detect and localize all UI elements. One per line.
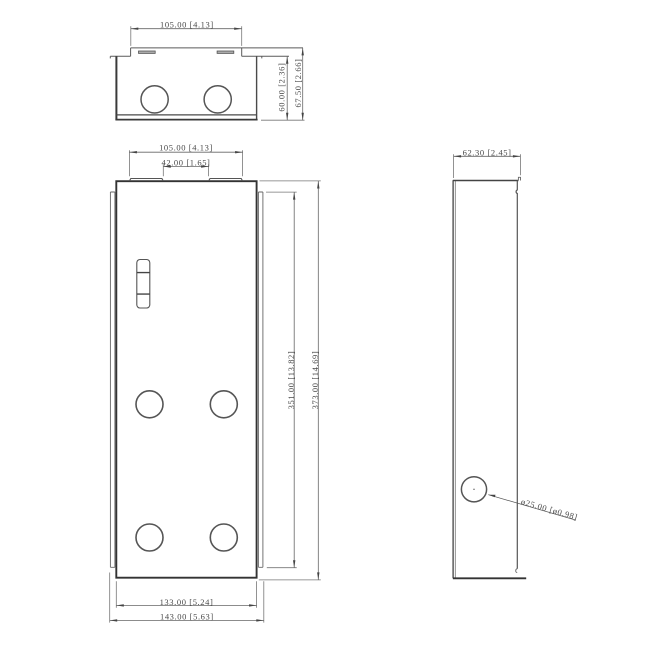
svg-text:60.00 [2.36]: 60.00 [2.36] — [277, 63, 287, 112]
svg-text:105.00 [4.13]: 105.00 [4.13] — [160, 20, 214, 30]
svg-text:67.50 [2.66]: 67.50 [2.66] — [293, 59, 303, 108]
svg-text:133.00 [5.24]: 133.00 [5.24] — [160, 597, 214, 607]
svg-text:42.00 [1.65]: 42.00 [1.65] — [162, 157, 211, 167]
svg-text:62.30 [2.45]: 62.30 [2.45] — [463, 147, 512, 157]
svg-text:105.00 [4.13]: 105.00 [4.13] — [159, 142, 213, 152]
svg-text:351.00 [13.82]: 351.00 [13.82] — [286, 351, 296, 410]
svg-text:143.00 [5.63]: 143.00 [5.63] — [160, 612, 214, 622]
svg-text:373.00 [14.69]: 373.00 [14.69] — [310, 351, 320, 410]
